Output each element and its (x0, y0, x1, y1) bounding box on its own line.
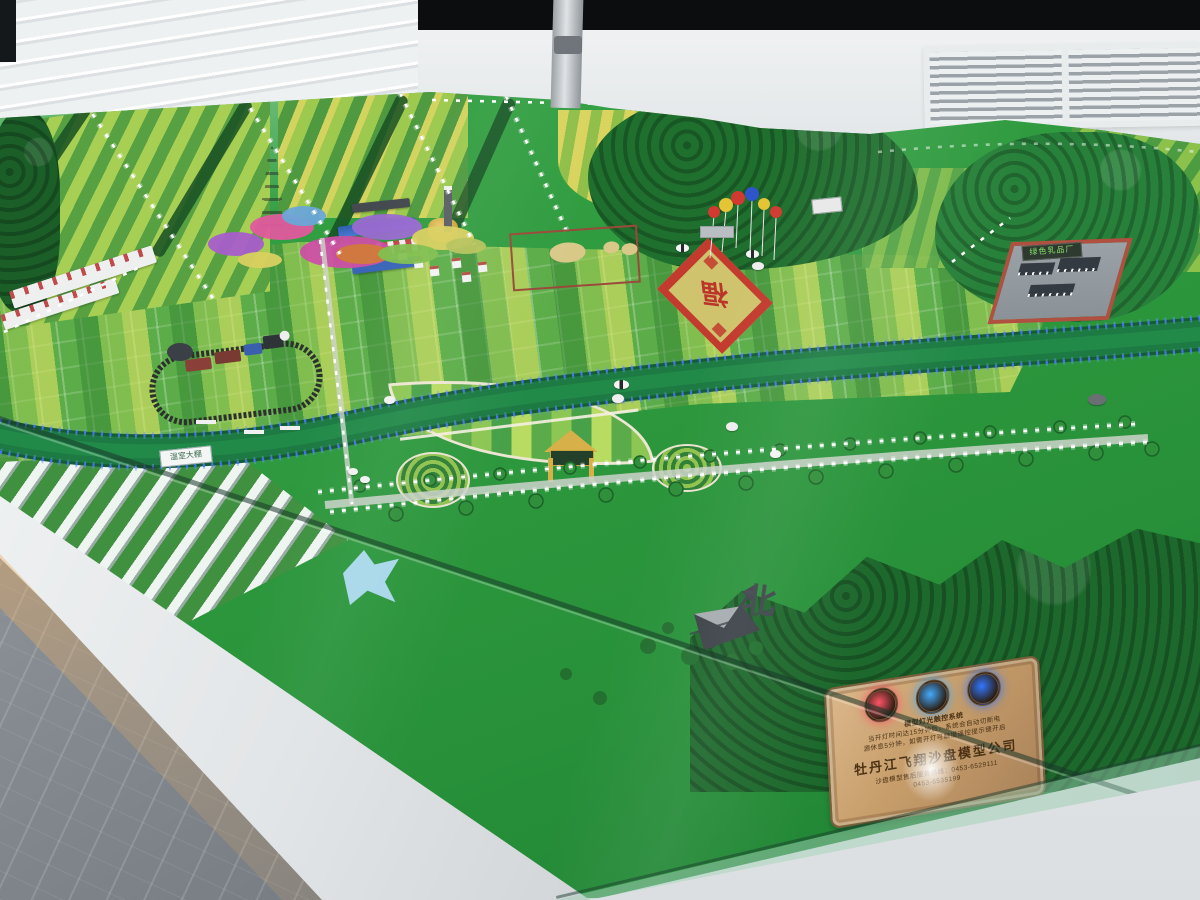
vent-divider (1061, 50, 1069, 122)
white-fence (244, 430, 264, 434)
balloon (719, 198, 733, 212)
cow-figure (746, 250, 759, 258)
balloon (745, 187, 759, 201)
balloon (770, 206, 782, 218)
panda-figure (752, 262, 764, 270)
glass-clamp (554, 36, 582, 54)
straw-horse (603, 241, 620, 254)
white-fence (280, 426, 300, 430)
compass-rose: 北 (690, 580, 778, 650)
glass-support-bar (551, 0, 584, 108)
balloon (731, 191, 745, 205)
balloon (758, 198, 770, 210)
donkey-figure (1088, 394, 1106, 405)
balloon (708, 206, 720, 218)
panda-figure (726, 422, 738, 431)
tv-screen (418, 0, 1200, 32)
touch-button-blue (966, 669, 1001, 708)
touch-button-blue (915, 677, 950, 716)
goat-figure (770, 450, 781, 458)
forest-billboard (811, 196, 842, 214)
cow-figure (614, 380, 629, 389)
straw-sculpture-pen (510, 226, 640, 291)
sheep-figure (360, 476, 370, 483)
cow-figure (676, 244, 689, 252)
greenhouse-sign-text: 温室大棚 (170, 449, 203, 461)
train-track (147, 327, 323, 426)
elephant-figure (167, 343, 193, 361)
window-frame (0, 0, 16, 62)
light-glare-spot (902, 736, 960, 802)
straw-elephant (549, 241, 586, 263)
train-car (243, 343, 262, 356)
train-car (185, 357, 212, 372)
vent-panel (923, 41, 1200, 130)
field-sign (700, 226, 734, 238)
showroom-photo: 福 (0, 0, 1200, 900)
compass-north-label: 北 (739, 580, 778, 622)
dog-figure (384, 396, 395, 404)
panda-figure (612, 394, 624, 403)
sheep-figure (348, 468, 358, 475)
white-fence (196, 420, 216, 424)
straw-horse (621, 243, 638, 256)
